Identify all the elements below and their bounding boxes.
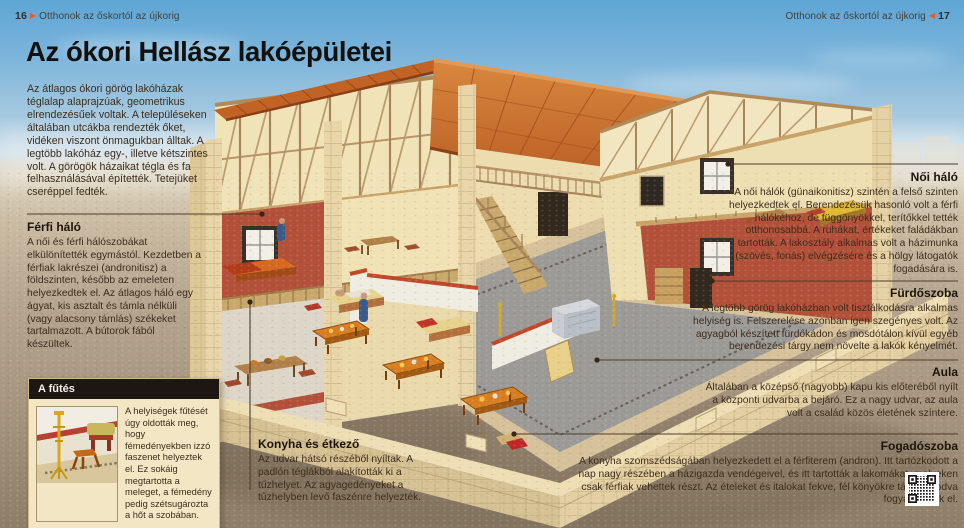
- running-header-right: Otthonok az őskortól az újkorig◀17: [785, 10, 950, 22]
- callout-body: Az udvar hátsó részéből nyíltak. A padló…: [258, 454, 434, 505]
- callout-furdoszoba: Fürdőszoba A legtöbb görög lakóházban vo…: [692, 286, 958, 354]
- callout-ferfi-halo: Férfi háló A női és férfi hálószobákat e…: [27, 220, 203, 352]
- callout-aula: Aula Általában a középső (nagyobb) kapu …: [698, 365, 958, 420]
- arrow-right-icon: ▶: [27, 11, 39, 20]
- heating-sidebar-box: A fűtés: [28, 378, 220, 528]
- running-title: Otthonok az őskortól az újkorig: [785, 11, 925, 22]
- callout-title: Női háló: [712, 170, 958, 184]
- heating-illustration: [36, 406, 118, 522]
- arrow-left-icon: ◀: [926, 11, 938, 20]
- sidebar-box-title: A fűtés: [29, 379, 219, 399]
- sidebar-box-body: A helyiségek fűtését úgy oldották meg, h…: [125, 406, 212, 522]
- page-number-right: 17: [938, 10, 950, 22]
- running-title: Otthonok az őskortól az újkorig: [39, 11, 179, 22]
- callout-body: A női hálók (günaikonitisz) szintén a fe…: [712, 187, 958, 276]
- callout-konyha: Konyha és étkező Az udvar hátsó részéből…: [258, 437, 434, 505]
- callout-body: A legtöbb görög lakóházban volt tisztálk…: [692, 303, 958, 354]
- qr-code: [905, 472, 939, 506]
- callout-fogadoszoba: Fogadószoba A konyha szomszédságában hel…: [572, 439, 958, 507]
- callout-title: Férfi háló: [27, 220, 203, 234]
- callout-title: Fürdőszoba: [692, 286, 958, 300]
- book-spread: 16▶Otthonok az őskortól az újkorig Ottho…: [0, 0, 964, 528]
- callout-body: A női és férfi hálószobákat elkülönített…: [27, 237, 203, 352]
- page-number-left: 16: [15, 10, 27, 22]
- callout-noi-halo: Női háló A női hálók (günaikonitisz) szi…: [712, 170, 958, 276]
- callout-title: Konyha és étkező: [258, 437, 434, 451]
- intro-paragraph: Az átlagos ókori görög lakóházak téglala…: [27, 83, 211, 199]
- running-header-left: 16▶Otthonok az őskortól az újkorig: [15, 10, 180, 22]
- callout-title: Fogadószoba: [572, 439, 958, 453]
- callout-title: Aula: [698, 365, 958, 379]
- callout-body: A konyha szomszédságában helyezkedett el…: [572, 456, 958, 507]
- callout-body: Általában a középső (nagyobb) kapu kis e…: [698, 382, 958, 420]
- page-title: Az ókori Hellász lakóépületei: [26, 36, 446, 68]
